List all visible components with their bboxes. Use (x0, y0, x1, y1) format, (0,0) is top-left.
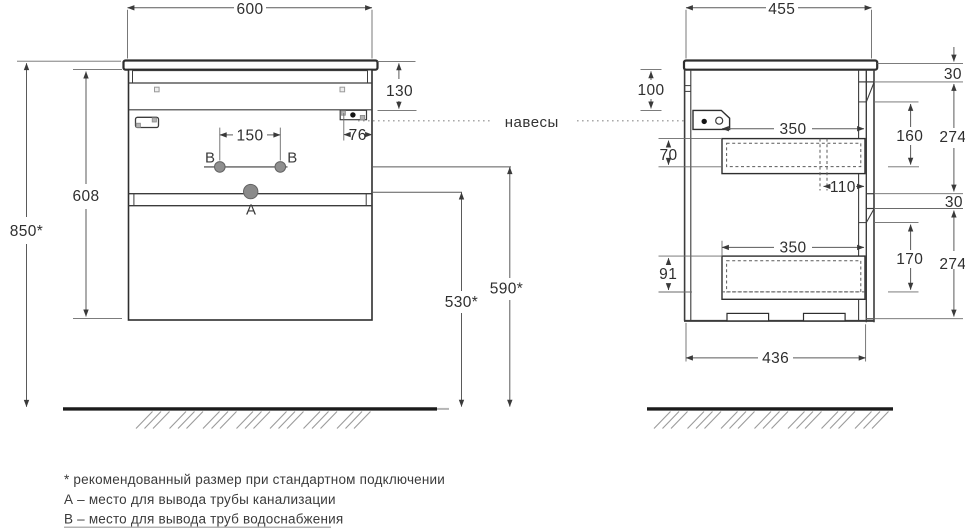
side-countertop (684, 61, 877, 70)
svg-text:100: 100 (637, 82, 664, 99)
front-cabinet: B B A (124, 61, 378, 321)
supply-hole-left (215, 162, 226, 173)
svg-text:110: 110 (830, 179, 856, 196)
side-dimensions: 455 100 350 70 (637, 1, 965, 367)
dim-siphon-offset: 110 (824, 179, 865, 196)
drain-hole-label: A (246, 202, 256, 219)
svg-text:160: 160 (896, 128, 923, 145)
front-countertop (124, 61, 378, 70)
dim-top-gap: 30 (944, 47, 962, 83)
technical-drawing-page: B B A 600 850* (0, 0, 965, 528)
side-view: 455 100 350 70 (637, 1, 965, 429)
dim-hanger-drop: 100 (637, 69, 664, 110)
svg-text:455: 455 (768, 1, 795, 18)
supply-hole-left-label: B (205, 150, 215, 167)
dim-body-height: 608 (72, 70, 122, 319)
vanity-dimension-drawing: B B A 600 850* (0, 0, 965, 528)
dim-front-width: 600 (128, 1, 373, 59)
hangers-callout: навесы (358, 114, 684, 131)
svg-text:70: 70 (659, 147, 677, 164)
svg-text:850*: 850* (10, 223, 44, 240)
front-view: B B A 600 850* (10, 1, 524, 429)
hangers-label: навесы (505, 114, 559, 131)
hanger-pin-dot (350, 112, 355, 117)
svg-text:76: 76 (349, 127, 367, 144)
svg-text:350: 350 (779, 240, 806, 257)
dim-height-from-floor: 850* (10, 61, 121, 407)
drain-hole (244, 184, 258, 198)
supply-hole-right-label: B (287, 150, 297, 167)
dim-drawer1-depth: 350 (722, 121, 864, 138)
svg-text:130: 130 (386, 83, 413, 100)
svg-text:91: 91 (659, 266, 677, 283)
footnote-recommended: * рекомендованный размер при стандартном… (64, 472, 445, 487)
svg-text:150: 150 (236, 127, 263, 144)
front1-bevel (866, 83, 874, 102)
screw-hole-left (155, 87, 160, 92)
hatch-front (136, 412, 371, 429)
footnote-supply: В – место для вывода труб водоснабжения (64, 512, 343, 527)
svg-text:530*: 530* (445, 294, 479, 311)
dim-front2-height: 274 (939, 211, 965, 317)
dim-depth: 455 (686, 1, 872, 59)
bottom-block-right (804, 313, 846, 321)
hanger-pin-dot-side (702, 119, 707, 124)
footnote-drain: А – место для вывода трубы канализации (64, 492, 336, 507)
dim-front2-recess: 170 (896, 225, 923, 290)
svg-text:600: 600 (236, 1, 263, 18)
ground-front (63, 409, 449, 429)
front2-bevel (866, 209, 874, 223)
svg-text:436: 436 (762, 350, 789, 367)
dim-drain-height: 530* (372, 192, 478, 406)
dim-middle-gap: 30 (945, 194, 963, 211)
bottom-block-left (727, 313, 769, 321)
dim-front1-height: 274 (939, 84, 965, 192)
hatch-side (654, 412, 889, 429)
svg-text:608: 608 (72, 188, 99, 205)
svg-text:590*: 590* (490, 281, 524, 298)
side-drawer2 (722, 256, 866, 299)
supply-hole-right (275, 162, 286, 173)
dim-drawer2-depth: 350 (722, 240, 864, 257)
dim-supply-height: 590* (372, 167, 523, 407)
dim-top-clearance: 130 (378, 61, 417, 110)
svg-text:170: 170 (896, 251, 923, 268)
dim-right-extensions (866, 64, 963, 319)
ground-side (647, 409, 893, 429)
screw-hole-right (340, 87, 345, 92)
footnotes: * рекомендованный размер при стандартном… (64, 472, 445, 527)
svg-text:274: 274 (939, 129, 965, 146)
svg-text:274: 274 (939, 256, 965, 273)
hanger-bracket-side (693, 110, 730, 129)
svg-text:30: 30 (944, 66, 962, 83)
svg-text:350: 350 (779, 121, 806, 138)
dim-bottom-depth: 436 (686, 323, 866, 367)
svg-text:30: 30 (945, 194, 963, 211)
dim-front1-recess: 160 (896, 104, 923, 165)
